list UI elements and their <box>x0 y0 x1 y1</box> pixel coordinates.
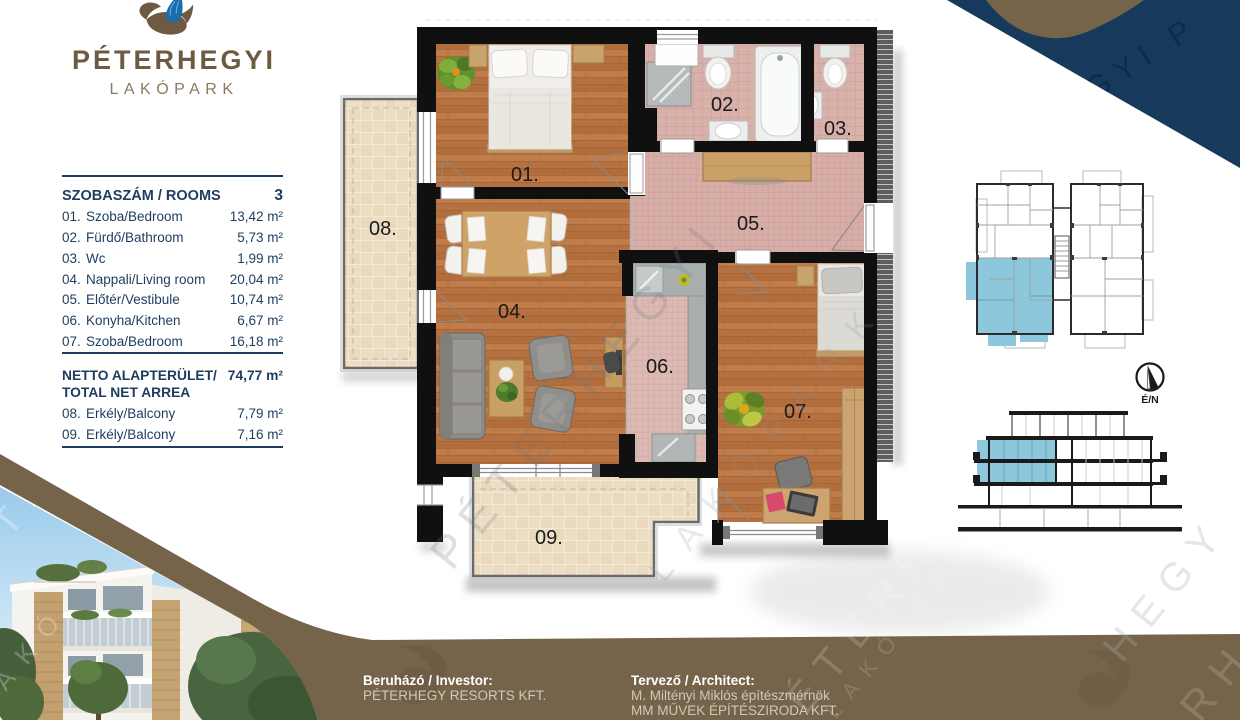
svg-text:7,79 m²: 7,79 m² <box>237 406 283 421</box>
svg-text:SZOBASZÁM / ROOMS: SZOBASZÁM / ROOMS <box>62 187 221 204</box>
svg-text:05.: 05. <box>62 292 81 307</box>
svg-text:06.: 06. <box>62 313 81 328</box>
svg-text:04.: 04. <box>498 301 526 323</box>
svg-text:Erkély/Balcony: Erkély/Balcony <box>86 406 176 421</box>
svg-text:Beruházó / Investor:: Beruházó / Investor: <box>363 673 493 688</box>
svg-text:M. Miltényi Miklós építészmérn: M. Miltényi Miklós építészmérnök <box>631 688 830 703</box>
svg-text:20,04 m²: 20,04 m² <box>230 272 284 287</box>
svg-text:09.: 09. <box>535 527 563 549</box>
svg-text:01.: 01. <box>62 209 81 224</box>
svg-text:Szoba/Bedroom: Szoba/Bedroom <box>86 334 183 349</box>
svg-text:74,77 m²: 74,77 m² <box>228 368 284 383</box>
svg-text:6,67 m²: 6,67 m² <box>237 313 283 328</box>
svg-text:02.: 02. <box>62 230 81 245</box>
svg-text:PÉTERHEGYI: PÉTERHEGYI <box>72 44 276 75</box>
svg-text:16,18 m²: 16,18 m² <box>230 334 284 349</box>
svg-text:LAKÓPARK: LAKÓPARK <box>109 79 238 98</box>
svg-text:04.: 04. <box>62 272 81 287</box>
svg-text:08.: 08. <box>369 218 397 240</box>
svg-text:03.: 03. <box>62 251 81 266</box>
svg-text:06.: 06. <box>646 356 674 378</box>
svg-text:Wc: Wc <box>86 251 106 266</box>
svg-text:NETTO ALAPTERÜLET/: NETTO ALAPTERÜLET/ <box>62 367 217 383</box>
svg-text:01.: 01. <box>511 164 539 186</box>
svg-text:Konyha/Kitchen: Konyha/Kitchen <box>86 313 181 328</box>
svg-text:10,74 m²: 10,74 m² <box>230 292 284 307</box>
svg-text:1,99 m²: 1,99 m² <box>237 251 283 266</box>
svg-text:Fürdő/Bathroom: Fürdő/Bathroom <box>86 230 184 245</box>
svg-text:09.: 09. <box>62 427 81 442</box>
svg-text:Erkély/Balcony: Erkély/Balcony <box>86 427 176 442</box>
svg-text:MM MŰVEK ÉPÍTÉSZIRODA KFT.: MM MŰVEK ÉPÍTÉSZIRODA KFT. <box>631 703 839 718</box>
svg-text:É/N: É/N <box>1141 393 1159 406</box>
svg-text:7,16 m²: 7,16 m² <box>237 427 283 442</box>
svg-text:Tervező / Architect:: Tervező / Architect: <box>631 673 755 688</box>
svg-text:03.: 03. <box>824 118 852 140</box>
svg-text:07.: 07. <box>62 334 81 349</box>
svg-text:Szoba/Bedroom: Szoba/Bedroom <box>86 209 183 224</box>
svg-text:3: 3 <box>274 187 283 204</box>
svg-text:5,73 m²: 5,73 m² <box>237 230 283 245</box>
svg-text:PÉTERHEGY RESORTS KFT.: PÉTERHEGY RESORTS KFT. <box>363 688 546 703</box>
svg-text:Nappali/Living room: Nappali/Living room <box>86 272 205 287</box>
svg-text:13,42 m²: 13,42 m² <box>230 209 284 224</box>
svg-text:TOTAL NET ARREA: TOTAL NET ARREA <box>62 385 190 400</box>
svg-text:05.: 05. <box>737 213 765 235</box>
svg-text:Előtér/Vestibule: Előtér/Vestibule <box>86 292 180 307</box>
svg-text:02.: 02. <box>711 94 739 116</box>
svg-text:08.: 08. <box>62 406 81 421</box>
